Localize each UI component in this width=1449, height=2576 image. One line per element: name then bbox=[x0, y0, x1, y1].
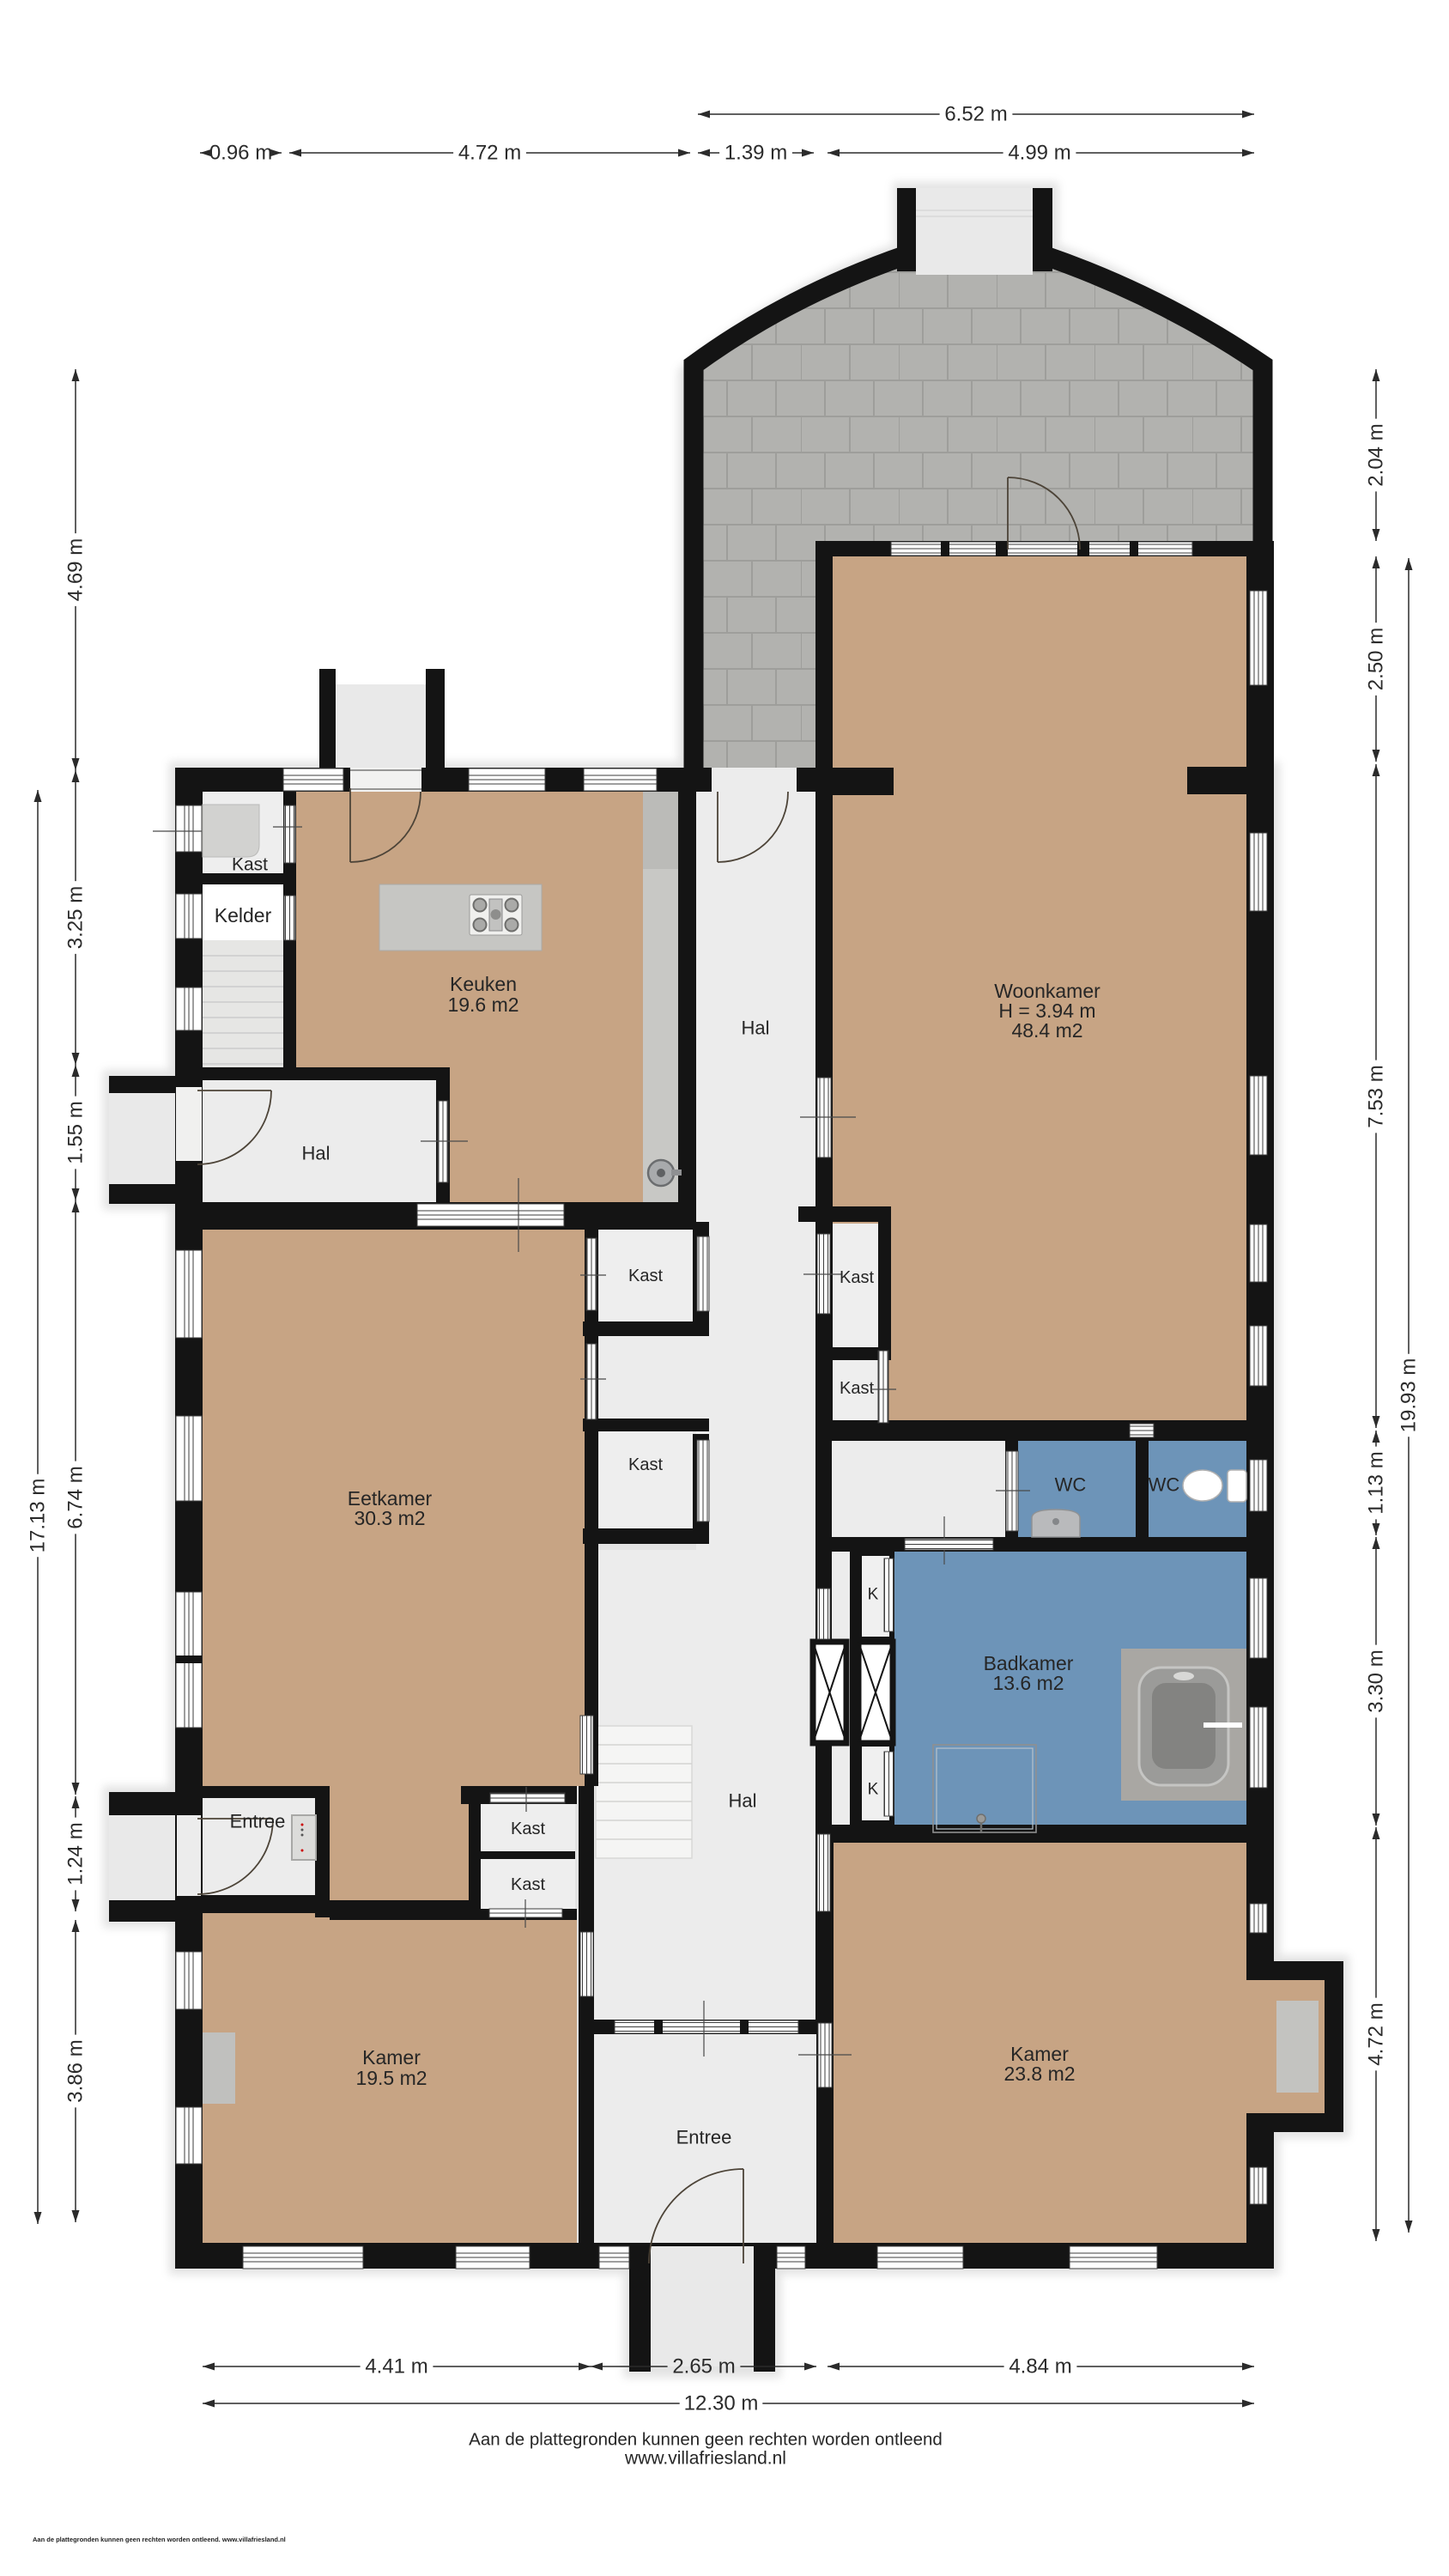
svg-text:K: K bbox=[868, 1586, 879, 1604]
svg-text:Aan de plattegronden kunnen ge: Aan de plattegronden kunnen geen rechten… bbox=[469, 2430, 943, 2450]
svg-text:Kast: Kast bbox=[232, 855, 268, 875]
svg-text:WC: WC bbox=[1149, 1474, 1180, 1496]
svg-text:6.74 m: 6.74 m bbox=[64, 1466, 88, 1528]
svg-text:48.4 m2: 48.4 m2 bbox=[1011, 1019, 1082, 1042]
svg-text:Hal: Hal bbox=[741, 1018, 769, 1039]
svg-text:4.72 m: 4.72 m bbox=[458, 142, 521, 165]
svg-text:19.6 m2: 19.6 m2 bbox=[447, 993, 518, 1016]
svg-text:www.villafriesland.nl: www.villafriesland.nl bbox=[624, 2449, 786, 2469]
svg-text:4.41 m: 4.41 m bbox=[365, 2355, 427, 2379]
svg-text:19.93 m: 19.93 m bbox=[1397, 1358, 1421, 1433]
svg-text:13.6 m2: 13.6 m2 bbox=[992, 1672, 1064, 1694]
svg-text:3.25 m: 3.25 m bbox=[64, 886, 88, 949]
svg-text:Entree: Entree bbox=[230, 1811, 286, 1832]
svg-text:12.30 m: 12.30 m bbox=[684, 2392, 759, 2415]
svg-text:4.99 m: 4.99 m bbox=[1008, 142, 1070, 165]
svg-text:1.24 m: 1.24 m bbox=[64, 1822, 88, 1885]
svg-text:Kast: Kast bbox=[840, 1379, 874, 1398]
svg-text:4.84 m: 4.84 m bbox=[1009, 2355, 1071, 2379]
svg-text:30.3 m2: 30.3 m2 bbox=[354, 1507, 425, 1529]
svg-text:Entree: Entree bbox=[676, 2127, 732, 2148]
svg-text:Kast: Kast bbox=[511, 1820, 545, 1838]
svg-text:1.13 m: 1.13 m bbox=[1365, 1451, 1388, 1514]
svg-text:Kast: Kast bbox=[511, 1875, 545, 1894]
svg-text:Aan de plattegronden kunnen ge: Aan de plattegronden kunnen geen rechten… bbox=[33, 2536, 286, 2543]
svg-text:3.86 m: 3.86 m bbox=[64, 2039, 88, 2102]
svg-text:2.04 m: 2.04 m bbox=[1365, 423, 1388, 486]
svg-text:Kelder: Kelder bbox=[215, 904, 272, 927]
svg-text:Keuken: Keuken bbox=[450, 973, 517, 995]
svg-text:Kast: Kast bbox=[840, 1268, 874, 1287]
svg-text:Hal: Hal bbox=[301, 1143, 330, 1164]
svg-text:17.13 m: 17.13 m bbox=[27, 1479, 50, 1553]
svg-text:Hal: Hal bbox=[728, 1790, 756, 1812]
svg-text:1.39 m: 1.39 m bbox=[724, 142, 787, 165]
svg-text:WC: WC bbox=[1055, 1474, 1087, 1496]
svg-text:4.72 m: 4.72 m bbox=[1365, 2002, 1388, 2065]
svg-text:6.52 m: 6.52 m bbox=[944, 103, 1007, 126]
svg-text:3.30 m: 3.30 m bbox=[1365, 1649, 1388, 1712]
svg-text:2.65 m: 2.65 m bbox=[672, 2355, 735, 2379]
svg-text:1.55 m: 1.55 m bbox=[64, 1101, 88, 1163]
svg-text:Kast: Kast bbox=[628, 1267, 663, 1285]
svg-text:2.50 m: 2.50 m bbox=[1365, 628, 1388, 690]
svg-text:Kast: Kast bbox=[628, 1455, 663, 1474]
svg-text:0.96 m: 0.96 m bbox=[209, 142, 272, 165]
svg-text:K: K bbox=[868, 1781, 879, 1799]
svg-text:7.53 m: 7.53 m bbox=[1365, 1065, 1388, 1127]
svg-text:19.5 m2: 19.5 m2 bbox=[355, 2067, 427, 2089]
svg-text:4.69 m: 4.69 m bbox=[64, 538, 88, 601]
svg-text:Kamer: Kamer bbox=[362, 2046, 421, 2069]
svg-text:23.8 m2: 23.8 m2 bbox=[1003, 2063, 1075, 2085]
